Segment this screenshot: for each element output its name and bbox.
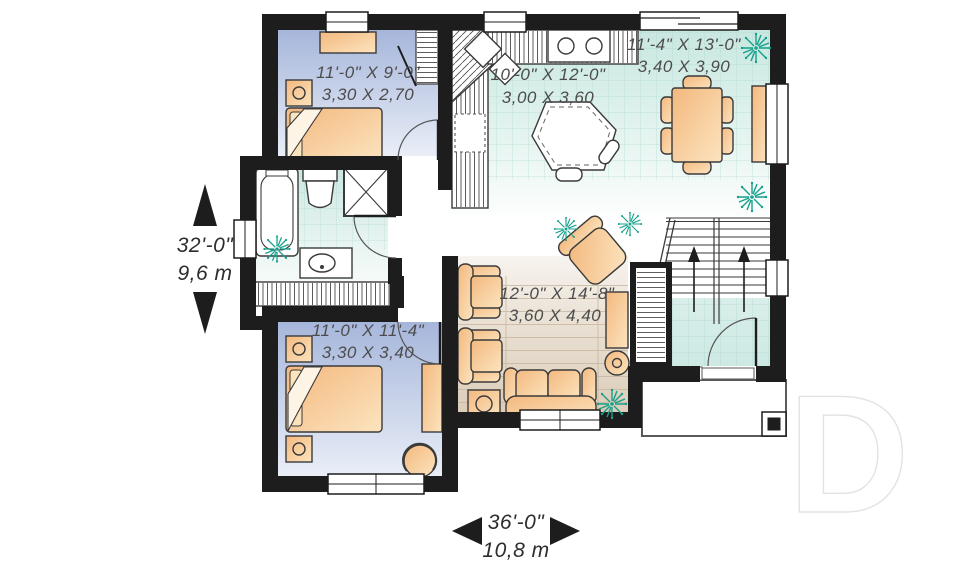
plant-icon — [597, 389, 627, 419]
arrow-left-icon — [452, 517, 482, 545]
wall-bathroom-right — [388, 156, 402, 216]
round-table — [605, 351, 629, 375]
plant-icon — [263, 235, 290, 262]
dishwasher — [455, 114, 485, 152]
bedroom1-size-metric: 3,30 X 2,70 — [322, 85, 415, 104]
dining-size-imperial: 11'-4" X 13'-0" — [627, 35, 741, 54]
nightstand — [286, 336, 312, 362]
plant-icon — [618, 212, 642, 236]
window-living-bottom — [520, 410, 600, 430]
armchair — [458, 328, 502, 384]
window-dining-right — [766, 84, 788, 164]
foyer-floor — [666, 298, 770, 366]
floor-plan-page: 11'-0" X 9'-0" 3,30 X 2,70 10'-0" X 12'-… — [0, 0, 960, 569]
chair — [403, 444, 436, 477]
bedroom1-size-imperial: 11'-0" X 9'-0" — [316, 63, 420, 82]
wall-living-left — [442, 256, 458, 492]
dining-size-metric: 3,40 X 3,90 — [638, 57, 731, 76]
armchair — [458, 264, 502, 320]
dresser — [320, 32, 376, 53]
width-metric: 10,8 m — [482, 539, 549, 562]
window-bedroom1 — [326, 12, 368, 32]
depth-imperial: 32'-0" — [177, 234, 235, 257]
dresser — [422, 364, 442, 432]
wall-bedroom2-left — [262, 306, 278, 492]
floor-plan-drawing: 11'-0" X 9'-0" 3,30 X 2,70 10'-0" X 12'-… — [0, 0, 960, 569]
bed — [286, 108, 382, 162]
plant-icon — [741, 33, 771, 63]
dimension-depth: 32'-0" 9,6 m — [177, 184, 235, 334]
vanity-sink — [300, 248, 352, 278]
living-size-imperial: 12'-0" X 14'-8" — [500, 284, 615, 303]
wall-bedroom2-top — [262, 306, 398, 322]
kitchen-size-imperial: 10'-0" X 12'-0" — [491, 65, 606, 84]
dimension-width: 36'-0" 10,8 m — [452, 511, 580, 562]
plant-icon — [737, 182, 767, 212]
bed — [286, 366, 382, 432]
porch-post — [762, 412, 786, 436]
stool — [556, 168, 582, 181]
width-imperial: 36'-0" — [488, 511, 546, 534]
depth-metric: 9,6 m — [177, 262, 232, 285]
brand-watermark-logo: D — [788, 360, 909, 548]
dining-table — [672, 88, 722, 162]
wall-bedroom1-left — [262, 14, 278, 170]
toilet — [303, 168, 337, 208]
window-stair-right — [766, 260, 788, 296]
dining-furniture — [661, 76, 768, 174]
wall-bedroom2-bottom — [262, 476, 328, 492]
coat-closet — [630, 262, 672, 368]
bedroom2-size-metric: 3,30 X 3,40 — [322, 343, 415, 362]
hall-closet — [254, 282, 390, 306]
living-size-metric: 3,60 X 4,40 — [509, 306, 602, 325]
arrow-down-icon — [193, 292, 217, 334]
wall-living-bottom — [442, 412, 520, 428]
stove — [548, 30, 610, 62]
bedroom2-size-imperial: 11'-0" X 11'-4" — [312, 321, 425, 340]
shower — [344, 168, 388, 216]
window-kitchen — [484, 12, 526, 32]
window-bathroom-left — [234, 220, 256, 258]
arrow-right-icon — [550, 517, 580, 545]
window-dining-sliding — [640, 12, 738, 30]
arrow-up-icon — [193, 184, 217, 226]
wall-bedroom1-right — [438, 14, 452, 190]
wall-right — [770, 14, 786, 382]
kitchen-size-metric: 3,00 X 3,60 — [502, 88, 595, 107]
plant-icon — [554, 217, 578, 241]
nightstand — [286, 436, 312, 462]
wall-foyer-bottom — [628, 366, 700, 382]
window-bedroom2-bottom — [328, 474, 424, 494]
wall-bedroom1-bottom — [240, 156, 398, 170]
nightstand — [286, 80, 312, 106]
